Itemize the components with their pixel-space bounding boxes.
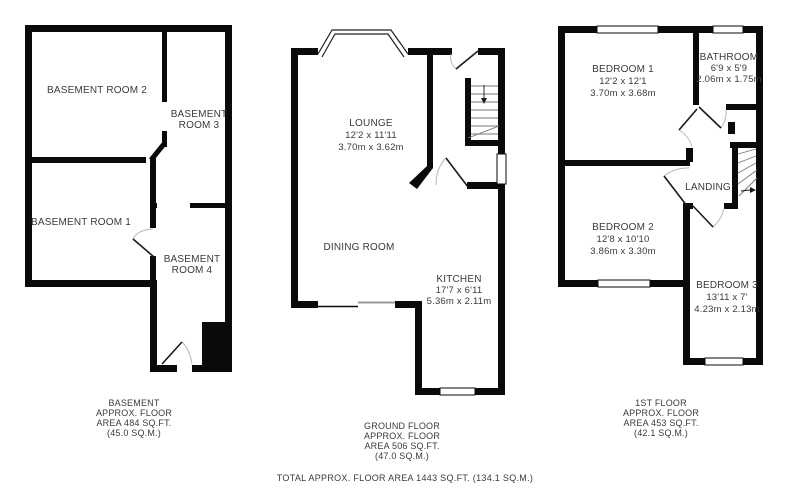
bedroom3-door-arc (713, 208, 724, 227)
first-caption-l1: 1ST FLOOR (635, 398, 687, 408)
front-door-arc (451, 54, 456, 69)
room-label-basement-room-3-l2: ROOM 3 (179, 120, 220, 131)
ground-caption-l1: GROUND FLOOR (364, 421, 440, 431)
ground-wall-angled (409, 160, 433, 189)
room-dims-bedroom-1-ft: 12'2 x 12'1 (599, 76, 647, 87)
hall-door-arc (436, 158, 446, 185)
basement-caption-l1: BASEMENT (108, 398, 159, 408)
room-dims-bathroom-ft: 6'9 x 5'9 (711, 63, 748, 74)
basement-walls (25, 25, 232, 372)
basement-caption-l2: APPROX. FLOOR (96, 408, 172, 418)
bedroom2-door-arc (664, 168, 689, 176)
front-door-leaf (456, 51, 478, 69)
basement-door-leaf (133, 239, 154, 257)
room-label-basement-room-3-l1: BASEMENT (171, 109, 228, 120)
room-dims-bedroom-1-m: 3.70m x 3.68m (590, 88, 655, 99)
room-label-basement-room-4-l2: ROOM 4 (172, 265, 213, 276)
room-label-landing: LANDING (685, 182, 731, 193)
bedroom1-door-arc (679, 130, 692, 147)
ground-floor-plan: LOUNGE 12'2 x 11'11 3.70m x 3.62m DINING… (291, 30, 506, 461)
first-floor-stairs (738, 149, 757, 196)
bathroom-door-leaf (699, 107, 721, 128)
room-dims-bedroom-3-m: 4.23m x 2.13m (694, 304, 759, 315)
first-floor-plan: BEDROOM 1 12'2 x 12'1 3.70m x 3.68m BATH… (558, 26, 763, 438)
hall-door-leaf (446, 158, 468, 187)
stairs-arrow-shaft (741, 190, 750, 191)
hall-window (497, 154, 506, 184)
room-dims-lounge-m: 3.70m x 3.62m (338, 142, 403, 153)
bedroom2-window (598, 280, 650, 287)
total-area-label: TOTAL APPROX. FLOOR AREA 1443 SQ.FT. (13… (277, 473, 533, 483)
room-dims-kitchen-m: 5.36m x 2.11m (427, 296, 492, 307)
basement-wall-diagonal (151, 144, 164, 160)
ground-caption-l4: (47.0 SQ.M.) (375, 451, 429, 461)
stairs-arrow-head (750, 187, 756, 193)
kitchen-window (440, 388, 475, 395)
ground-caption-l2: APPROX. FLOOR (364, 431, 440, 441)
bedroom3-window (705, 358, 743, 365)
first-caption-l3: AREA 453 SQ.FT. (623, 418, 698, 428)
basement-plan: BASEMENT ROOM 2 BASEMENT ROOM 3 BASEMENT… (25, 25, 232, 438)
room-label-basement-room-1: BASEMENT ROOM 1 (31, 217, 131, 228)
room-label-bathroom: BATHROOM (700, 52, 759, 63)
basement-door-arc (133, 229, 153, 239)
floorplan-page: BASEMENT ROOM 2 BASEMENT ROOM 3 BASEMENT… (0, 0, 800, 495)
room-label-bedroom-3: BEDROOM 3 (696, 280, 758, 291)
room-label-basement-room-2: BASEMENT ROOM 2 (47, 85, 147, 96)
room-label-bedroom-1: BEDROOM 1 (592, 64, 654, 75)
room-dims-bathroom-m: 2.06m x 1.75m (696, 74, 761, 85)
first-caption-l4: (42.1 SQ.M.) (634, 428, 688, 438)
bedroom1-window (597, 26, 658, 33)
bedroom2-door-leaf (664, 176, 687, 206)
room-label-lounge: LOUNGE (349, 118, 393, 129)
basement-ext-door-leaf (162, 342, 182, 364)
floorplan-drawing: BASEMENT ROOM 2 BASEMENT ROOM 3 BASEMENT… (0, 0, 800, 495)
basement-caption-l4: (45.0 SQ.M.) (107, 428, 161, 438)
room-label-basement-room-4-l1: BASEMENT (164, 254, 221, 265)
room-dims-bedroom-3-ft: 13'11 x 7' (706, 292, 747, 303)
room-dims-bedroom-2-m: 3.86m x 3.30m (590, 246, 655, 257)
first-caption-l2: APPROX. FLOOR (623, 408, 699, 418)
room-label-kitchen: KITCHEN (436, 274, 481, 285)
room-dims-lounge-ft: 12'2 x 11'11 (345, 130, 397, 141)
room-dims-kitchen-ft: 17'7 x 6'11 (436, 285, 483, 296)
ground-walls (291, 48, 505, 395)
bedroom3-door-leaf (693, 206, 713, 227)
bathroom-door-arc (721, 110, 726, 128)
bedroom1-door-leaf (679, 109, 697, 130)
stairs-down-arrow-head (481, 98, 487, 104)
ground-stairs (468, 85, 499, 138)
room-label-bedroom-2: BEDROOM 2 (592, 222, 654, 233)
bay-window-inner (322, 34, 404, 57)
ground-caption-l3: AREA 506 SQ.FT. (364, 441, 439, 451)
basement-ext-door-arc (182, 342, 192, 364)
room-label-dining-room: DINING ROOM (323, 242, 394, 253)
basement-caption-l3: AREA 484 SQ.FT. (96, 418, 171, 428)
bathroom-window (713, 26, 743, 33)
room-dims-bedroom-2-ft: 12'8 x 10'10 (596, 234, 649, 245)
